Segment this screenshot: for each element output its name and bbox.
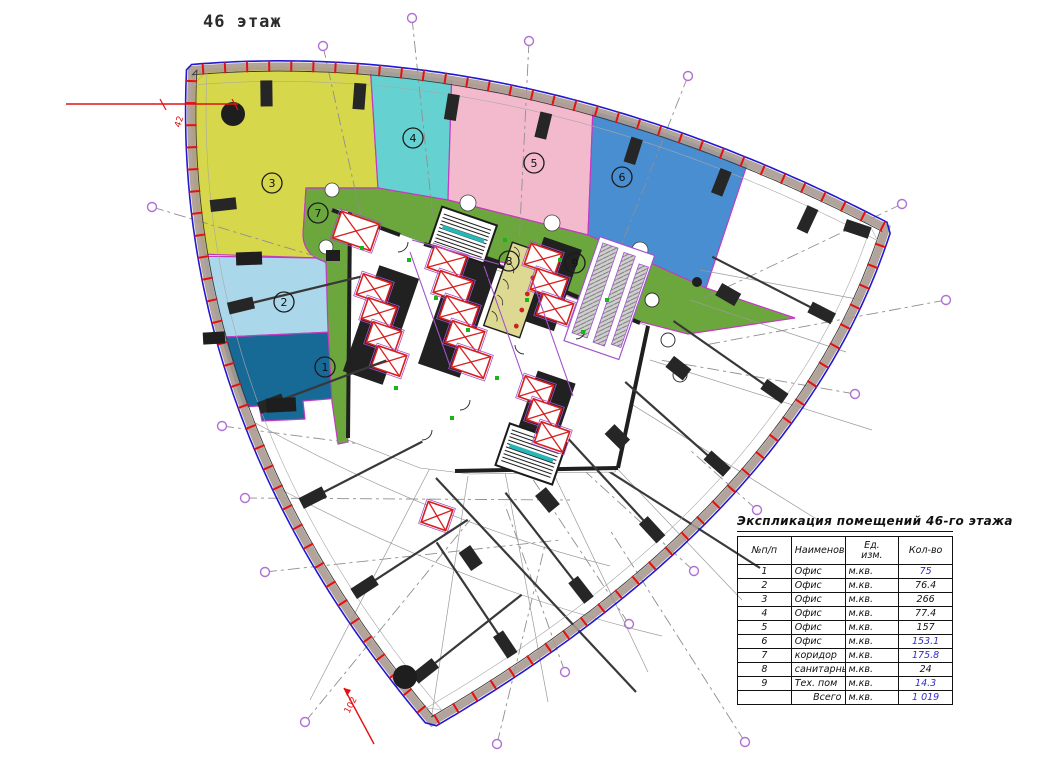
grid-axis-marker [851, 390, 860, 399]
col-header-num: №п/п [738, 537, 792, 565]
table-title: Экспликация помещений 46-го этажа [737, 514, 953, 532]
cell-name: Офис [791, 579, 845, 593]
structural-column [760, 379, 788, 404]
cell-num: 3 [738, 593, 792, 607]
total-qty: 1 019 [899, 691, 953, 705]
table-total-row: Всегом.кв.1 019 [738, 691, 953, 705]
table-row: 9Тех. помм.кв.14.3 [738, 677, 953, 691]
table-row: 6Офисм.кв.153.1 [738, 635, 953, 649]
grid-axis-marker [898, 200, 907, 209]
cell-qty: 266 [899, 593, 953, 607]
grid-axis-marker [301, 718, 310, 727]
cell-name: Офис [791, 635, 845, 649]
grid-axis [610, 530, 745, 742]
table-row: 4Офисм.кв.77.4 [738, 607, 953, 621]
table-row: 2Офисм.кв.76.4 [738, 579, 953, 593]
col-header-qty: Кол-во [899, 537, 953, 565]
cell-num: 7 [738, 649, 792, 663]
cell-qty: 75 [899, 565, 953, 579]
cell-unit: м.кв. [845, 649, 899, 663]
cell-name: Офис [791, 593, 845, 607]
facade-mullion-tick [188, 169, 199, 170]
facade-mullion-tick [192, 213, 203, 214]
cell-name: коридор [791, 649, 845, 663]
cell-num: 4 [738, 607, 792, 621]
cell-name: Офис [791, 621, 845, 635]
cell-num: 1 [738, 565, 792, 579]
cell-num: 2 [738, 579, 792, 593]
dimension-left-text: 42 [173, 115, 186, 129]
svg-text:5: 5 [531, 157, 538, 170]
facade-mullion-tick [423, 70, 424, 81]
cell-unit: м.кв. [845, 621, 899, 635]
col-header-name: Наименование [791, 537, 845, 565]
structural-column [260, 80, 272, 106]
svg-text:9: 9 [572, 257, 579, 270]
cell-unit: м.кв. [845, 635, 899, 649]
cell-qty: 157 [899, 621, 953, 635]
structural-column [493, 630, 517, 658]
cell-qty: 77.4 [899, 607, 953, 621]
cell-name: Офис [791, 607, 845, 621]
radial-beam [314, 442, 423, 498]
cell-num: 6 [738, 635, 792, 649]
cell-unit: м.кв. [845, 607, 899, 621]
svg-text:7: 7 [315, 207, 322, 220]
svg-text:2: 2 [281, 296, 288, 309]
cell-qty: 153.1 [899, 635, 953, 649]
facade-mullion-tick [203, 64, 204, 75]
total-label: Всего [791, 691, 845, 705]
grid-axis-marker [690, 567, 699, 576]
facade-mullion-tick [401, 68, 402, 79]
drawing-sheet: 46 этаж [0, 0, 1058, 776]
structural-column [797, 205, 819, 234]
grid-axis-marker [493, 740, 502, 749]
cell-unit: м.кв. [845, 593, 899, 607]
cell-unit: м.кв. [845, 579, 899, 593]
grid-axis-marker [218, 422, 227, 431]
svg-text:4: 4 [410, 132, 417, 145]
facade-mullion-tick [379, 65, 380, 76]
svg-text:6: 6 [619, 171, 626, 184]
svg-text:1: 1 [322, 361, 329, 374]
radial-beam [426, 595, 522, 671]
facade-mullion-tick [225, 62, 226, 73]
cell-qty: 14.3 [899, 677, 953, 691]
table-row: 3Офисм.кв.266 [738, 593, 953, 607]
cell-unit: м.кв. [845, 565, 899, 579]
cell-qty: 76.4 [899, 579, 953, 593]
cell-unit: м.кв. [845, 677, 899, 691]
grid-axis-marker [148, 203, 157, 212]
grid-axis-marker [684, 72, 693, 81]
table-row: 7коридорм.кв.175.8 [738, 649, 953, 663]
grid-axis-marker [942, 296, 951, 305]
cell-unit: м.кв. [845, 691, 899, 705]
cell-name: Офис [791, 565, 845, 579]
facade-mullion-tick [189, 191, 200, 192]
explication-table: №п/п Наименование Ед. изм. Кол-во 1Офисм… [737, 536, 953, 705]
grid-axis [245, 498, 570, 500]
cell-num: 8 [738, 663, 792, 677]
facade-mullion-tick [357, 64, 358, 75]
radial-beam [674, 321, 774, 391]
cell-num [738, 691, 792, 705]
structural-column [807, 302, 836, 325]
grid-axis-marker [241, 494, 250, 503]
col-header-unit: Ед. изм. [845, 537, 899, 565]
cell-name: санитарный узел [791, 663, 845, 677]
cell-qty: 175.8 [899, 649, 953, 663]
grid-axis-marker [741, 738, 750, 747]
cell-num: 9 [738, 677, 792, 691]
grid-axis-marker [525, 37, 534, 46]
cell-unit: м.кв. [845, 663, 899, 677]
svg-text:8: 8 [506, 255, 513, 268]
table-row: 8санитарный узелм.кв.24 [738, 663, 953, 677]
table-row: 5Офисм.кв.157 [738, 621, 953, 635]
grid-axis-marker [408, 14, 417, 23]
structural-column [665, 356, 691, 381]
explication-block: Экспликация помещений 46-го этажа №п/п Н… [737, 514, 953, 705]
structural-column [298, 486, 327, 509]
radial-beam [365, 520, 467, 587]
table-row: 1Офисм.кв.75 [738, 565, 953, 579]
cell-qty: 24 [899, 663, 953, 677]
svg-text:3: 3 [269, 177, 276, 190]
radial-beam [625, 382, 716, 463]
structural-column [352, 83, 366, 110]
grid-axis-marker [261, 568, 270, 577]
structural-column [535, 487, 560, 513]
grid-axis-marker [561, 668, 570, 677]
grid-axis-marker [319, 42, 328, 51]
cell-num: 5 [738, 621, 792, 635]
facade-mullion-tick [335, 62, 336, 73]
cell-name: Тех. пом [791, 677, 845, 691]
structural-column [350, 575, 378, 599]
